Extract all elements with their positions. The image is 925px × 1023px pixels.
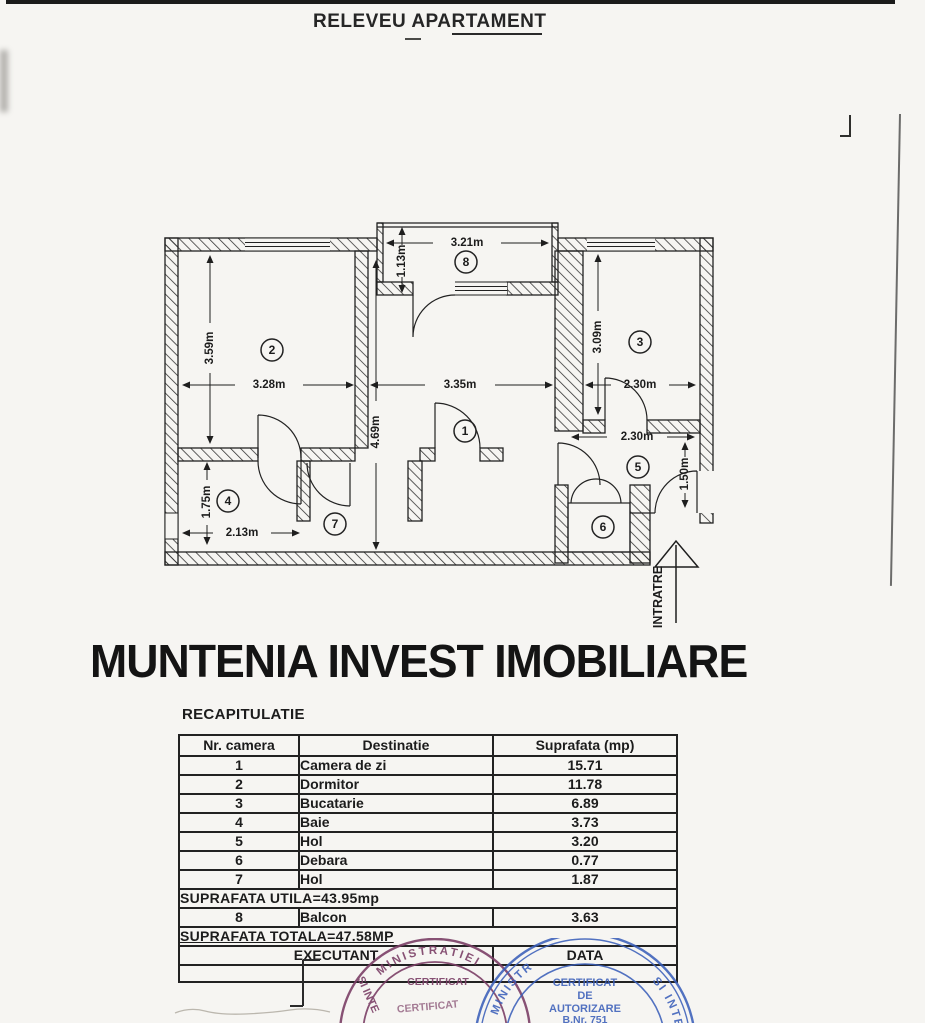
cell-dest: Balcon (299, 908, 493, 927)
walls (165, 223, 713, 565)
cell-mp: 11.78 (493, 775, 677, 794)
room-label-7: 7 (324, 513, 346, 535)
dim-room1-width: 3.35m (444, 379, 477, 391)
left-stamp-line1: CERTIFICAT (407, 976, 469, 988)
cell-nr: 6 (179, 851, 299, 870)
cell-mp: 3.73 (493, 813, 677, 832)
cell-mp: 15.71 (493, 756, 677, 775)
svg-text:5: 5 (635, 460, 642, 474)
scan-smudge (0, 50, 8, 112)
balcony-railing (377, 223, 558, 227)
dim-room4-height: 1.75m (201, 486, 213, 519)
suprafata-utila: SUPRAFATA UTILA=43.95mp (179, 889, 677, 908)
balcon-row: 8 Balcon 3.63 (179, 908, 677, 927)
dim-balcony-depth: 1.13m (396, 245, 408, 278)
room-label-4: 4 (217, 490, 239, 512)
title-underline-dash (405, 38, 421, 40)
dim-room2-height: 3.59m (204, 332, 216, 365)
dim-room1-height: 4.69m (370, 416, 382, 449)
dim-room5-width: 2.30m (621, 431, 654, 443)
svg-text:8: 8 (463, 255, 470, 269)
room-label-8: 8 (455, 251, 477, 273)
svg-text:2: 2 (269, 343, 276, 357)
col-header-dest: Destinatie (299, 735, 493, 756)
cell-dest: Hol (299, 832, 493, 851)
cell-nr: 1 (179, 756, 299, 775)
room-label-5: 5 (627, 456, 649, 478)
room-label-6: 6 (592, 516, 614, 538)
table-row: 2 Dormitor 11.78 (179, 775, 677, 794)
dim-room3-height: 3.09m (592, 321, 604, 354)
table-row: 4 Baie 3.73 (179, 813, 677, 832)
dim-room5-height: 1.50m (679, 458, 691, 491)
scanned-page: RELEVEU APARTAMENT (0, 0, 925, 1023)
recap-title: RECAPITULATIE (182, 706, 305, 723)
left-stamp-line2: CERTIFICAT (397, 998, 460, 1015)
svg-text:1: 1 (462, 424, 469, 438)
cell-nr: 5 (179, 832, 299, 851)
table-header-row: Nr. camera Destinatie Suprafata (mp) (179, 735, 677, 756)
cell-mp: 3.63 (493, 908, 677, 927)
cell-dest: Dormitor (299, 775, 493, 794)
cell-dest: Debara (299, 851, 493, 870)
dim-room3-width: 2.30m (624, 379, 657, 391)
cell-mp: 6.89 (493, 794, 677, 813)
cell-nr: 7 (179, 870, 299, 889)
dim-room4-width: 2.13m (226, 527, 259, 539)
svg-text:4: 4 (225, 494, 232, 508)
dim-room2-width: 3.28m (253, 379, 286, 391)
right-stamp-line1: CERTIFICAT (553, 977, 618, 989)
cell-mp: 0.77 (493, 851, 677, 870)
right-stamp: MINISTR SI INTE CERTIFICAT DE AUTORIZARE… (475, 938, 695, 1023)
page-fold-line (890, 114, 901, 586)
cell-dest: Baie (299, 813, 493, 832)
left-stamp-side-text: SI INTE (354, 975, 381, 1015)
right-stamp-line4: B.Nr. 751 (563, 1014, 608, 1023)
table-row: 3 Bucatarie 6.89 (179, 794, 677, 813)
utila-row: SUPRAFATA UTILA=43.95mp (179, 889, 677, 908)
table-row: 6 Debara 0.77 (179, 851, 677, 870)
stamps-overlay: MINISTRATIEI SI INTE CERTIFICAT CERTIFIC… (150, 938, 750, 1023)
corner-crop-mark (840, 115, 851, 137)
col-header-mp: Suprafata (mp) (493, 735, 677, 756)
handwriting-mark (175, 1009, 330, 1014)
right-stamp-line2: DE (577, 990, 592, 1002)
title-underline (452, 33, 542, 35)
cell-dest: Hol (299, 870, 493, 889)
dim-balcony-width: 3.21m (451, 237, 484, 249)
entrance-label: INTRATRE (651, 566, 665, 628)
document-title: RELEVEU APARTAMENT (313, 11, 546, 33)
floor-plan: 3.21m 1.13m 3.59m 3.28m 3.35m 4.69m 3.09… (155, 215, 735, 635)
table-row: 1 Camera de zi 15.71 (179, 756, 677, 775)
company-name: MUNTENIA INVEST IMOBILIARE (90, 634, 747, 688)
cell-mp: 3.20 (493, 832, 677, 851)
svg-text:3: 3 (637, 335, 644, 349)
room-label-3: 3 (629, 331, 651, 353)
svg-text:6: 6 (600, 520, 607, 534)
cell-nr: 8 (179, 908, 299, 927)
cell-nr: 3 (179, 794, 299, 813)
table-row: 5 Hol 3.20 (179, 832, 677, 851)
cell-nr: 4 (179, 813, 299, 832)
room-label-1: 1 (454, 420, 476, 442)
room-label-2: 2 (261, 339, 283, 361)
cell-dest: Camera de zi (299, 756, 493, 775)
cell-mp: 1.87 (493, 870, 677, 889)
svg-text:7: 7 (332, 517, 339, 531)
table-row: 7 Hol 1.87 (179, 870, 677, 889)
doors (258, 295, 697, 552)
cell-dest: Bucatarie (299, 794, 493, 813)
top-border-line (6, 0, 895, 4)
pen-bracket-marks (290, 960, 320, 1006)
cell-nr: 2 (179, 775, 299, 794)
col-header-nr: Nr. camera (179, 735, 299, 756)
